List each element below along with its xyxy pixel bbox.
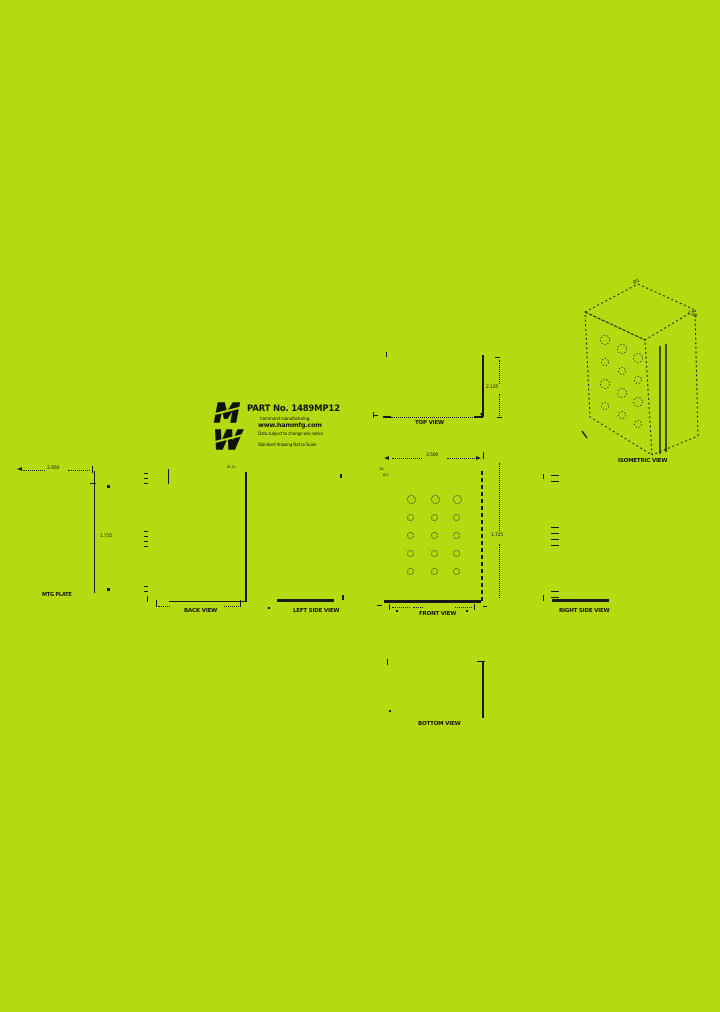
iso-hole bbox=[602, 403, 609, 410]
tick bbox=[144, 536, 148, 537]
iso-hole bbox=[635, 421, 642, 428]
dim-end-dot bbox=[268, 607, 270, 609]
arrowhead-icon bbox=[17, 467, 22, 471]
tick bbox=[342, 595, 344, 600]
dim-line bbox=[455, 607, 472, 608]
change-notice: Data subject to change w/o notice bbox=[258, 431, 323, 436]
tick bbox=[495, 357, 500, 358]
tick bbox=[144, 531, 148, 532]
iso-hole bbox=[601, 336, 610, 345]
front-view-width-dim: 3.500 bbox=[426, 453, 438, 458]
tick bbox=[144, 546, 148, 547]
front-view-height-dim: 1.725 bbox=[491, 533, 503, 538]
mtg-plate-label: MTG PLATE bbox=[42, 592, 72, 598]
dim-end-dot bbox=[107, 485, 110, 488]
dim-end-dot bbox=[396, 610, 398, 612]
front-view-label: FRONT VIEW bbox=[419, 611, 456, 617]
tick bbox=[144, 483, 148, 484]
top-view-bottom-edge bbox=[391, 417, 475, 418]
bottom-view-right-edge bbox=[482, 662, 484, 718]
right-side-view-label: RIGHT SIDE VIEW bbox=[559, 608, 609, 614]
back-view-bottom-edge bbox=[169, 601, 246, 602]
right-side-bottom-edge bbox=[552, 599, 609, 602]
front-view-callout: 2X bbox=[379, 466, 383, 471]
top-view-depth-dim: 2.125 bbox=[486, 385, 498, 390]
part-number: PART No. 1489MP12 bbox=[247, 404, 340, 414]
iso-hole bbox=[619, 368, 626, 375]
scale-note: Standard drawing Not to Scale bbox=[258, 442, 316, 447]
iso-hole bbox=[601, 380, 610, 389]
tick bbox=[543, 595, 544, 601]
back-view-label: BACK VIEW bbox=[184, 608, 217, 614]
tick bbox=[474, 604, 475, 610]
front-view-hole bbox=[407, 550, 414, 557]
front-view-hole bbox=[453, 532, 460, 539]
dim-line bbox=[447, 458, 475, 459]
front-view-hole bbox=[431, 495, 440, 504]
tick bbox=[156, 600, 157, 607]
tick bbox=[90, 483, 96, 484]
tick bbox=[144, 591, 148, 592]
front-view-hole bbox=[431, 514, 438, 521]
iso-hole bbox=[619, 412, 626, 419]
front-view-hole bbox=[431, 550, 438, 557]
dim-line bbox=[224, 606, 239, 607]
tick bbox=[551, 527, 559, 528]
dim-line bbox=[413, 607, 423, 608]
isometric-view: Ø1 1.00 bbox=[575, 266, 720, 466]
isometric-view-label: ISOMETRIC VIEW bbox=[618, 458, 667, 464]
tick bbox=[483, 452, 484, 459]
tick bbox=[144, 541, 148, 542]
tick bbox=[147, 596, 148, 602]
dim-line bbox=[392, 607, 410, 608]
dim-line-end bbox=[474, 416, 483, 418]
tick bbox=[551, 545, 559, 546]
front-view-hole bbox=[453, 568, 460, 575]
arrowhead-icon bbox=[384, 456, 389, 460]
left-side-bottom-edge bbox=[277, 599, 334, 602]
front-view-hole bbox=[431, 532, 438, 539]
tick bbox=[92, 466, 93, 473]
tick bbox=[551, 597, 559, 598]
dim-end-dot bbox=[466, 610, 468, 612]
front-view-hole bbox=[407, 514, 414, 521]
dim-line bbox=[68, 470, 90, 471]
front-view-hole bbox=[431, 568, 438, 575]
tick bbox=[551, 591, 559, 592]
mtg-plate-height-dim: 1.725 bbox=[100, 534, 112, 539]
tick bbox=[144, 478, 148, 479]
tick bbox=[144, 586, 148, 587]
dim-end-dot bbox=[389, 710, 391, 712]
back-view-hole-callout: Ø .11 bbox=[227, 464, 236, 469]
top-view-right-edge bbox=[482, 355, 484, 417]
dim-extension-line bbox=[499, 360, 500, 384]
tick bbox=[144, 473, 148, 474]
tick bbox=[551, 481, 559, 482]
back-view-edge bbox=[168, 469, 169, 484]
tick bbox=[387, 659, 388, 665]
dim-end-dot bbox=[107, 588, 110, 591]
tick bbox=[340, 474, 342, 478]
iso-hole bbox=[634, 398, 643, 407]
back-view-right-edge bbox=[245, 472, 247, 602]
tick bbox=[483, 606, 487, 607]
dim-extension-line bbox=[499, 463, 500, 531]
tick bbox=[543, 474, 544, 479]
iso-holes bbox=[601, 336, 643, 428]
front-view-hole bbox=[453, 495, 462, 504]
tick bbox=[386, 352, 387, 357]
bottom-view-label: BOTTOM VIEW bbox=[418, 721, 461, 727]
tick bbox=[551, 533, 559, 534]
tick bbox=[551, 539, 559, 540]
top-view-label: TOP VIEW bbox=[415, 420, 444, 426]
dim-extension-line bbox=[499, 544, 500, 598]
front-view-bottom-edge bbox=[384, 600, 481, 603]
front-view-hole bbox=[453, 514, 460, 521]
front-view-hole bbox=[407, 568, 414, 575]
front-view-hole bbox=[407, 495, 416, 504]
drawing-sheet: M W PART No. 1489MP12 hammond manufactur… bbox=[0, 0, 720, 1012]
tick bbox=[497, 417, 502, 418]
dim-line-end bbox=[383, 416, 391, 418]
iso-dim-right: 1.00 bbox=[686, 309, 698, 319]
dim-line bbox=[23, 470, 45, 471]
iso-hole bbox=[618, 389, 627, 398]
front-view-hole bbox=[453, 550, 460, 557]
mtg-plate-width-dim: 2.950 bbox=[47, 466, 59, 471]
left-side-view-label: LEFT SIDE VIEW bbox=[293, 608, 339, 614]
iso-hole bbox=[602, 359, 609, 366]
website-link: www.hammfg.com bbox=[258, 421, 322, 429]
front-view-right-edge bbox=[481, 471, 483, 602]
arrowhead-icon bbox=[476, 456, 481, 460]
dim-line bbox=[392, 458, 422, 459]
iso-hole bbox=[634, 354, 643, 363]
front-view-callout: Ø.1 bbox=[383, 472, 389, 477]
iso-hole bbox=[618, 345, 627, 354]
tick bbox=[373, 412, 374, 418]
tick bbox=[240, 600, 241, 607]
dim-extension-line bbox=[499, 394, 500, 416]
mtg-plate-vertical-line bbox=[94, 471, 95, 593]
tick bbox=[389, 604, 390, 610]
dim-line bbox=[158, 606, 170, 607]
tick bbox=[551, 475, 559, 476]
tick bbox=[377, 605, 382, 606]
front-view-hole bbox=[407, 532, 414, 539]
hammond-logo-icon: M W bbox=[213, 399, 249, 453]
iso-hole bbox=[635, 377, 642, 384]
